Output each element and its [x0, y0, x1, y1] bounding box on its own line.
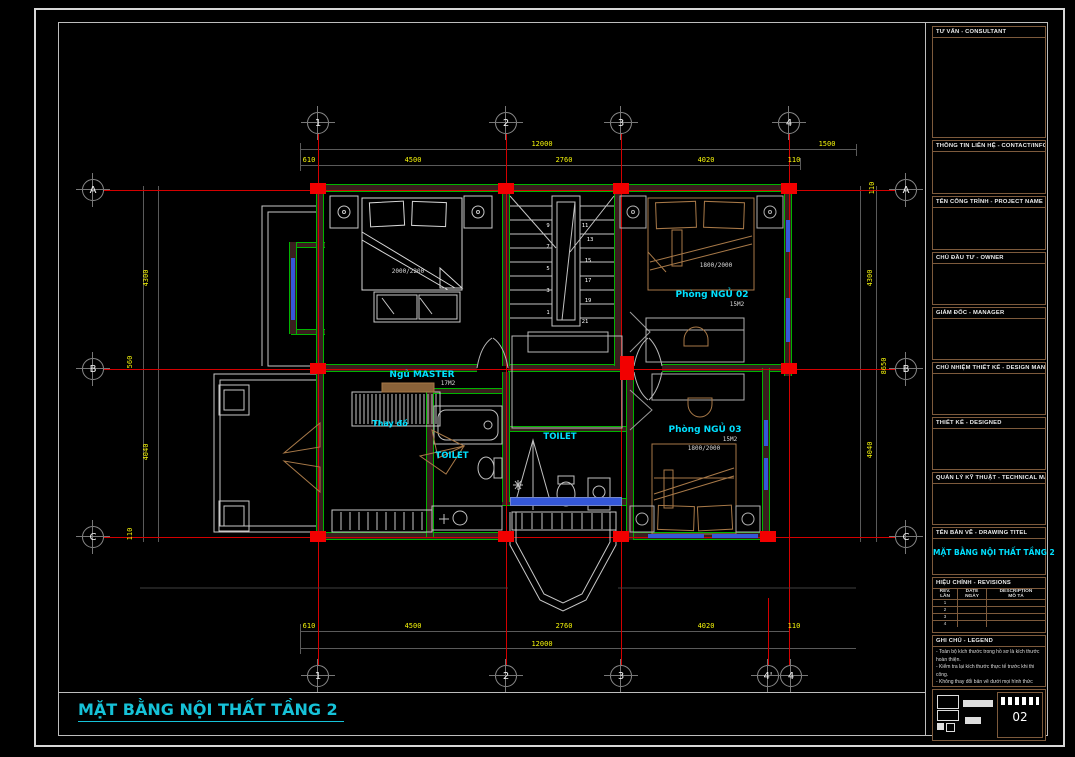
section-label: THIẾT KẾ - DESIGNED [933, 418, 1045, 429]
terrace-top-left [262, 206, 316, 366]
dimension-label: 110 [126, 528, 134, 541]
dimension-label: 610 [303, 156, 316, 164]
window [712, 534, 758, 538]
column [498, 531, 514, 542]
bed03-size: 1800/2000 [688, 445, 721, 452]
grid-bubble-3-top: 3 [610, 112, 632, 134]
grid-bubble-A-right: A [895, 179, 917, 201]
desks [646, 318, 744, 417]
dimension-label: 12000 [531, 640, 552, 648]
svg-text:9: 9 [546, 223, 549, 229]
dimension-label: 2760 [556, 156, 573, 164]
master-bench [374, 292, 460, 322]
plan-title: MẶT BẰNG NỘI THẤT TẦNG 2 [78, 700, 344, 722]
window [764, 458, 768, 490]
dimension-label: 1500 [819, 140, 836, 148]
revision-row: 1 [933, 600, 1045, 607]
sheet-number-box: 02 [997, 692, 1043, 738]
column [781, 183, 797, 194]
column [620, 356, 634, 380]
room-label-master: Ngủ MASTER [389, 370, 454, 380]
dimension-label: 2760 [556, 622, 573, 630]
dimension-label: 4020 [698, 622, 715, 630]
dimension-label: 8650 [880, 358, 888, 375]
column [760, 531, 776, 542]
column [781, 363, 797, 374]
grid-bubble-1-bottom: 1 [307, 665, 329, 687]
hall-landing [512, 332, 622, 428]
grid-bubble-2-bottom: 2 [495, 665, 517, 687]
svg-text:13: 13 [587, 237, 594, 243]
legend-label: GHI CHÚ - LEGEND [933, 636, 1045, 647]
column [498, 183, 514, 194]
room-label-toilet2: TOILET [543, 432, 576, 442]
column [310, 363, 326, 374]
grid-bubble-1-top: 1 [307, 112, 329, 134]
titleblock-section-manager: GIÁM ĐỐC - MANAGER [932, 307, 1046, 360]
titleblock-section-contact: THÔNG TIN LIÊN HỆ - CONTACT/INFO [932, 140, 1046, 194]
grid-bubble-A-left: A [82, 179, 104, 201]
dimension-label: 4300 [142, 270, 150, 287]
titleblock-section-technical: QUẢN LÝ KỸ THUẬT - TECHNICAL MANAGER [932, 472, 1046, 525]
section-label: TƯ VẤN - CONSULTANT [933, 27, 1045, 38]
titleblock-legend: GHI CHÚ - LEGEND - Toàn bộ kích thước tr… [932, 635, 1046, 687]
grid-bubble-4-bottom: 4 [780, 665, 802, 687]
svg-text:15: 15 [585, 258, 592, 264]
room-label-bed03: Phòng NGỦ 03 [668, 425, 741, 435]
grid-bubble-C-right: C [895, 526, 917, 548]
dimension-label: 4300 [866, 270, 874, 287]
bed-03-nightstands [630, 506, 760, 532]
svg-text:7: 7 [546, 244, 549, 250]
revision-row: 4 [933, 621, 1045, 627]
grid-bubble-4-top: 4 [778, 112, 800, 134]
revisions-header: REV.LẦN DATENGÀY DESCRIPTIONMÔ TẢ [933, 589, 1045, 600]
dimension-label: 110 [868, 182, 876, 195]
column [613, 531, 629, 542]
svg-text:1: 1 [546, 310, 549, 316]
dimension-label: 4040 [866, 442, 874, 459]
balcony-door-sill [510, 497, 622, 506]
dimension-label: 12000 [531, 140, 552, 148]
scale-bar [965, 717, 981, 724]
window [786, 220, 790, 252]
section-label: QUẢN LÝ KỸ THUẬT - TECHNICAL MANAGER [933, 473, 1045, 484]
grid-bubble-B-right: B [895, 358, 917, 380]
logo-box [937, 695, 959, 709]
legend-note: - Không thay đổi bản vẽ dưới mọi hình th… [936, 679, 1042, 687]
dimension-label: 4500 [405, 156, 422, 164]
window [764, 420, 768, 446]
grid-bubble-3-bottom: 3 [610, 665, 632, 687]
section-label: TÊN BẢN VẼ - DRAWING TITEL [933, 528, 1045, 539]
master-nightstands [330, 196, 492, 228]
stairs [510, 196, 614, 326]
column [613, 183, 629, 194]
bed-02 [648, 198, 754, 290]
dimension-label: 560 [126, 356, 134, 369]
titleblock-section-design-manager: CHỦ NHIỆM THIẾT KẾ - DESIGN MANAGER [932, 362, 1046, 415]
room-label-bed02: Phòng NGỦ 02 [675, 290, 748, 300]
room-area-master: 17M2 [441, 380, 455, 387]
titleblock-drawing-title: MẶT BẰNG NỘI THẤT TẦNG 2 [933, 548, 1045, 557]
revisions-label: HIỆU CHỈNH - REVISIONS [933, 578, 1045, 589]
grid-bubble-4p-bottom: 4' [757, 665, 779, 687]
balcony-left [214, 374, 316, 532]
window [786, 298, 790, 342]
title-strip-line [58, 692, 925, 693]
room-label-toilet1: TOILET [435, 451, 468, 461]
dimension-label: 110 [788, 622, 801, 630]
legend-note: - Kiểm tra lại kích thước thực tế trước … [936, 664, 1042, 679]
master-bed [362, 198, 462, 290]
section-label: TÊN CÔNG TRÌNH - PROJECT NAME [933, 197, 1045, 208]
sheet-barcode [1001, 697, 1039, 705]
sheet-number: 02 [998, 710, 1042, 724]
scale-bar [963, 700, 993, 707]
titleblock-section-designed: THIẾT KẾ - DESIGNED [932, 417, 1046, 470]
section-label: THÔNG TIN LIÊN HỆ - CONTACT/INFO [933, 141, 1045, 152]
section-label: CHỦ NHIỆM THIẾT KẾ - DESIGN MANAGER [933, 363, 1045, 374]
column [310, 183, 326, 194]
balcony-bottom [510, 512, 616, 611]
titleblock-section-project: TÊN CÔNG TRÌNH - PROJECT NAME [932, 196, 1046, 250]
titleblock-section-consultant: TƯ VẤN - CONSULTANT [932, 26, 1046, 138]
grid-bubble-2-top: 2 [495, 112, 517, 134]
legend-notes: - Toàn bộ kích thước trong hồ sơ là kích… [933, 647, 1045, 687]
svg-text:19: 19 [585, 298, 592, 304]
svg-text:5: 5 [546, 266, 549, 272]
section-label: CHỦ ĐẦU TƯ - OWNER [933, 253, 1045, 264]
window [648, 534, 704, 538]
logo-box [937, 723, 944, 730]
svg-text:3: 3 [546, 288, 549, 294]
window [291, 258, 295, 320]
logo-box [946, 723, 955, 732]
titleblock-footer: 02 [932, 689, 1046, 741]
balcony-doors-left [284, 423, 320, 492]
svg-text:11: 11 [582, 223, 589, 229]
svg-text:21: 21 [582, 319, 589, 325]
section-label: GIÁM ĐỐC - MANAGER [933, 308, 1045, 319]
logo-box [937, 710, 959, 721]
dimension-label: 610 [303, 622, 316, 630]
room-area-bed03: 15M2 [723, 436, 737, 443]
stair-numbers: 1 3 5 7 9 11 13 15 17 19 21 [546, 223, 593, 325]
toilet-master-fixtures [420, 406, 502, 530]
dimension-label: 4040 [142, 444, 150, 461]
grid-bubble-C-left: C [82, 526, 104, 548]
bed-03 [652, 444, 736, 534]
room-label-dressing: Thay đồ [372, 419, 408, 428]
dimension-label: 110 [788, 156, 801, 164]
low-cabinet [332, 510, 432, 532]
dimension-label: 4020 [698, 156, 715, 164]
titleblock-divider [925, 22, 926, 736]
titleblock-revisions: HIỆU CHỈNH - REVISIONS REV.LẦN DATENGÀY … [932, 577, 1046, 633]
revision-row: 3 [933, 614, 1045, 621]
column [310, 531, 326, 542]
titleblock-section-drawing-title: TÊN BẢN VẼ - DRAWING TITEL MẶT BẰNG NỘI … [932, 527, 1046, 575]
bed02-size: 1800/2000 [700, 262, 733, 269]
bed-02-nightstands [620, 196, 783, 228]
master-bed-size: 2000/2200 [392, 268, 425, 275]
revision-row: 2 [933, 607, 1045, 614]
grid-bubble-B-left: B [82, 358, 104, 380]
legend-note: - Toàn bộ kích thước trong hồ sơ là kích… [936, 649, 1042, 664]
dimension-label: 4500 [405, 622, 422, 630]
svg-text:17: 17 [585, 278, 592, 284]
titleblock-section-owner: CHỦ ĐẦU TƯ - OWNER [932, 252, 1046, 305]
room-area-bed02: 15M2 [730, 301, 744, 308]
